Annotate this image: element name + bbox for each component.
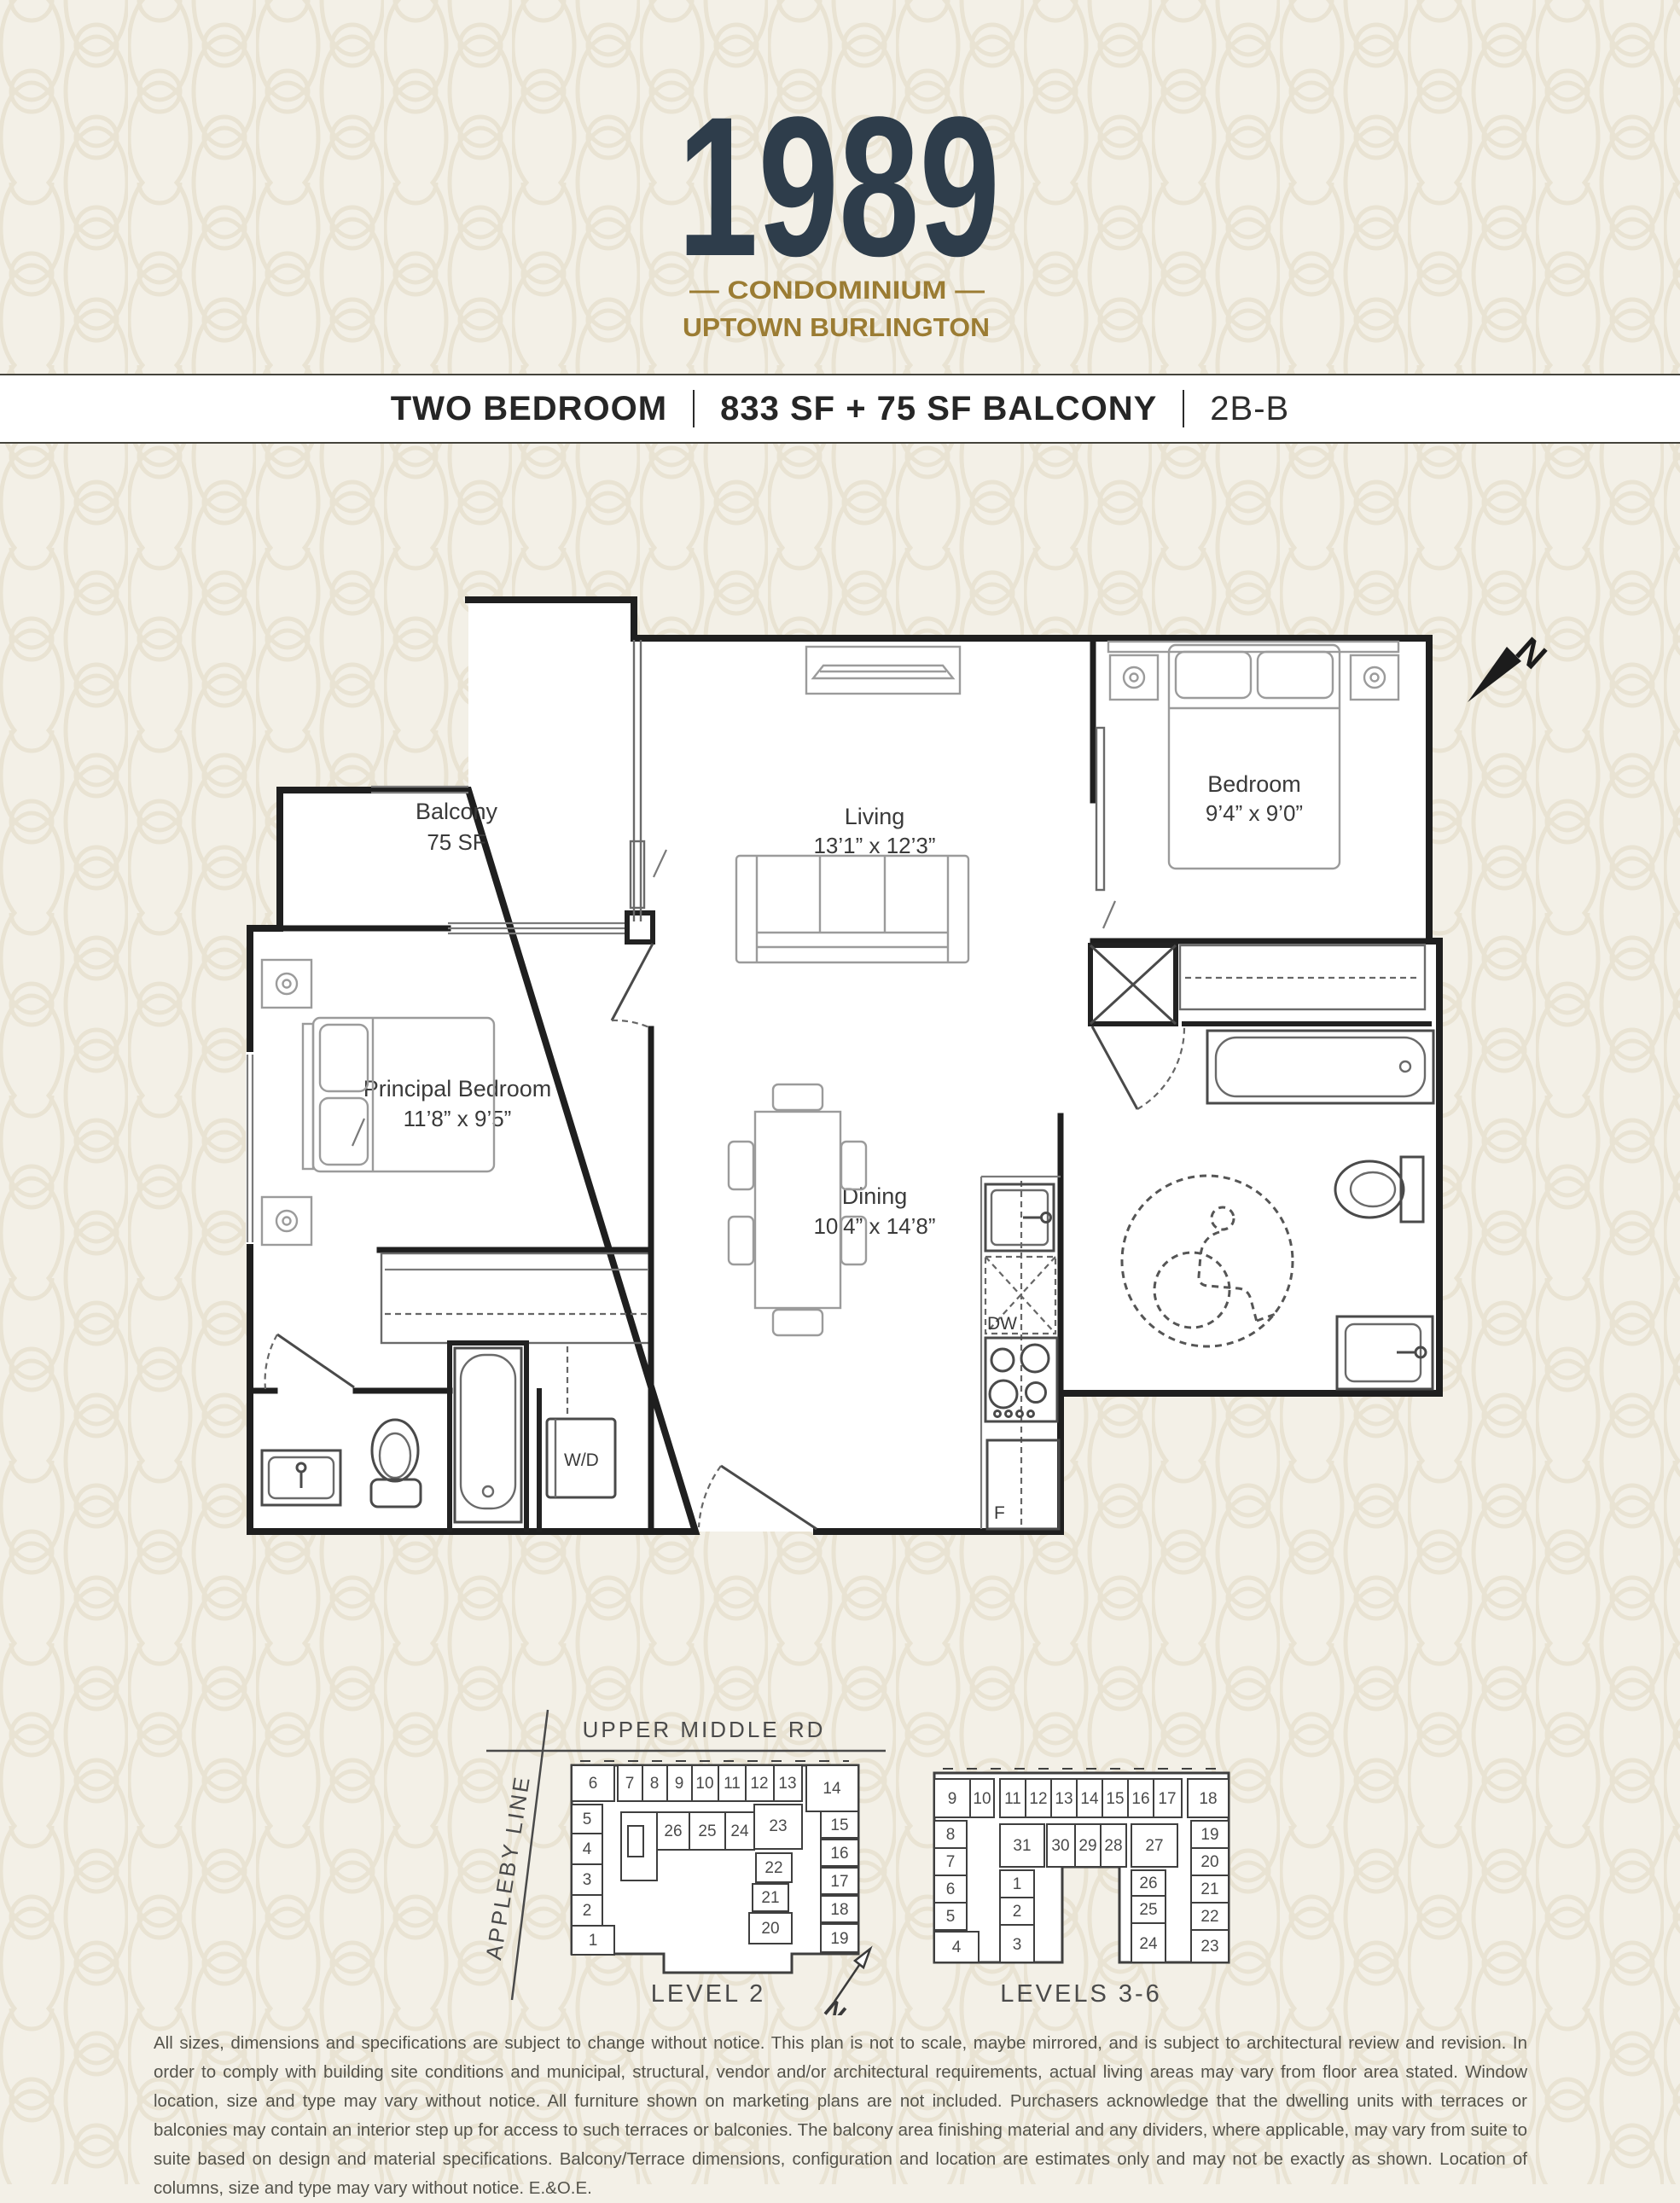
street-label-upper-middle: UPPER MIDDLE RD [583, 1717, 826, 1742]
living-label: Living [845, 804, 905, 829]
dishwasher-label: DW [987, 1314, 1017, 1334]
logo-uptown-burlington: UPTOWN BURLINGTON [683, 312, 990, 342]
svg-text:9: 9 [675, 1775, 684, 1793]
living-dims: 13’1” x 12’3” [813, 833, 935, 858]
svg-text:11: 11 [1004, 1790, 1021, 1808]
svg-text:9: 9 [948, 1790, 957, 1808]
unit-code-label: 2B-B [1210, 390, 1289, 428]
svg-text:11: 11 [724, 1775, 741, 1793]
bedroom-dims: 9’4” x 9’0” [1206, 800, 1303, 826]
svg-text:5: 5 [946, 1908, 956, 1926]
svg-text:28: 28 [1104, 1837, 1122, 1855]
svg-text:4: 4 [583, 1840, 592, 1858]
svg-text:2: 2 [583, 1902, 592, 1920]
svg-text:4: 4 [952, 1939, 962, 1956]
svg-text:2: 2 [1013, 1903, 1022, 1921]
svg-text:10: 10 [973, 1790, 991, 1808]
svg-text:25: 25 [698, 1822, 716, 1840]
svg-text:22: 22 [1200, 1908, 1218, 1926]
svg-text:20: 20 [761, 1920, 779, 1938]
unit-type-label: TWO BEDROOM [391, 390, 667, 428]
svg-text:20: 20 [1200, 1853, 1218, 1871]
balcony-label: Balcony [416, 799, 498, 824]
disclaimer-text: All sizes, dimensions and specifications… [154, 2029, 1527, 2203]
svg-text:1: 1 [589, 1932, 598, 1950]
svg-text:12: 12 [1029, 1790, 1047, 1808]
unit-area-label: 833 SF + 75 SF BALCONY [720, 390, 1157, 428]
separator [1183, 390, 1184, 427]
svg-text:25: 25 [1139, 1901, 1157, 1919]
principal-dims: 11’8” x 9’5” [404, 1106, 512, 1131]
svg-text:26: 26 [664, 1822, 682, 1840]
floor-plan: Balcony 75 SF Living 13’1” x 12’3” Bedro… [243, 587, 1446, 1538]
svg-text:3: 3 [1013, 1936, 1022, 1954]
principal-label: Principal Bedroom [363, 1076, 552, 1101]
svg-text:18: 18 [1199, 1790, 1217, 1808]
logo-condominium: — CONDOMINIUM — [689, 276, 985, 305]
balcony-dims: 75 SF [427, 829, 485, 855]
svg-text:7: 7 [625, 1775, 635, 1793]
logo-year: 1989 [677, 76, 1000, 298]
building-core [621, 1812, 657, 1880]
svg-text:6: 6 [589, 1775, 598, 1793]
svg-text:23: 23 [769, 1817, 787, 1835]
svg-text:29: 29 [1078, 1837, 1096, 1855]
svg-text:5: 5 [583, 1811, 592, 1828]
svg-text:21: 21 [1200, 1880, 1218, 1898]
svg-text:16: 16 [830, 1845, 848, 1863]
svg-text:21: 21 [761, 1889, 779, 1907]
svg-text:8: 8 [946, 1826, 956, 1844]
header-logo: 1989 — CONDOMINIUM — UPTOWN BURLINGTON [0, 0, 1680, 367]
separator [693, 390, 695, 427]
svg-text:24: 24 [730, 1822, 749, 1840]
svg-text:16: 16 [1131, 1790, 1149, 1808]
svg-text:15: 15 [830, 1816, 848, 1834]
svg-text:23: 23 [1200, 1938, 1218, 1956]
svg-text:10: 10 [695, 1775, 713, 1793]
svg-text:13: 13 [778, 1775, 796, 1793]
svg-text:22: 22 [764, 1859, 782, 1877]
svg-text:8: 8 [650, 1775, 660, 1793]
svg-text:31: 31 [1013, 1837, 1031, 1855]
svg-text:17: 17 [1158, 1790, 1176, 1808]
svg-text:17: 17 [830, 1873, 848, 1891]
north-arrow: N [1461, 621, 1555, 719]
svg-text:26: 26 [1139, 1875, 1157, 1892]
compass-arrowhead-icon [855, 1949, 870, 1968]
svg-text:24: 24 [1139, 1935, 1158, 1953]
svg-text:27: 27 [1145, 1837, 1163, 1855]
compass-north-label: N [821, 1995, 851, 2015]
dining-label: Dining [842, 1183, 908, 1209]
svg-text:1: 1 [1013, 1875, 1022, 1893]
svg-text:30: 30 [1051, 1837, 1069, 1855]
svg-text:14: 14 [1080, 1790, 1099, 1808]
bedroom-label: Bedroom [1207, 771, 1301, 797]
svg-text:18: 18 [830, 1901, 848, 1919]
street-label-appleby: APPLEBY LINE [480, 1773, 535, 1962]
svg-text:19: 19 [1200, 1826, 1218, 1844]
svg-text:15: 15 [1106, 1790, 1124, 1808]
title-bar: TWO BEDROOM 833 SF + 75 SF BALCONY 2B-B [0, 374, 1680, 444]
keyplan-compass: N [821, 1930, 893, 2015]
svg-text:3: 3 [583, 1871, 592, 1889]
svg-text:6: 6 [946, 1880, 956, 1898]
svg-text:7: 7 [946, 1853, 956, 1871]
keyplan-levels36: 9 10 11 12 13 14 15 16 17 18 8 7 6 5 4 3… [896, 1698, 1263, 2012]
washer-dryer-label: W/D [564, 1450, 599, 1470]
svg-text:12: 12 [750, 1775, 768, 1793]
fridge-label: F [994, 1503, 1005, 1523]
dining-dims: 10’4” x 14’8” [813, 1213, 935, 1239]
svg-text:14: 14 [823, 1780, 841, 1798]
levels36-title: LEVELS 3-6 [1000, 1980, 1162, 2008]
svg-text:13: 13 [1055, 1790, 1073, 1808]
level2-title: LEVEL 2 [651, 1980, 765, 2008]
north-arrow-label: N [1509, 630, 1555, 677]
